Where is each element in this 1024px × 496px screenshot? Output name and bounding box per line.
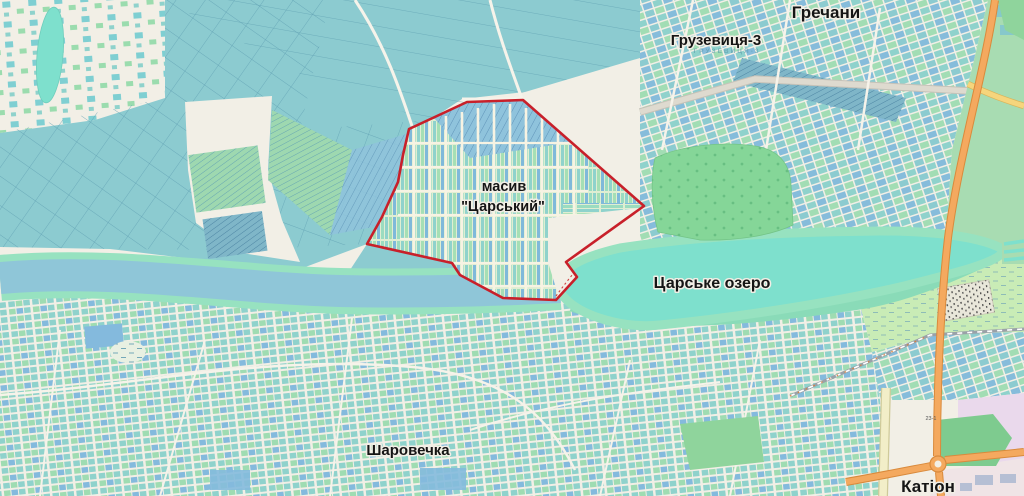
place-label-gruzevytsia3: Грузевиця-3 <box>671 32 761 49</box>
green-patch-south <box>680 416 764 470</box>
place-label-masiv-line2: "Царський" <box>461 199 545 215</box>
road-ref-label: 23-1 <box>925 416 936 422</box>
boulevard <box>883 388 886 496</box>
place-label-sharovechka: Шаровечка <box>366 442 450 459</box>
place-label-grechany: Гречани <box>792 3 860 22</box>
orchard <box>652 144 793 240</box>
map-canvas[interactable]: Гречани Грузевиця-3 ГРУЗЕВИЦЯ-3 масив "Ц… <box>0 0 1024 496</box>
area-label-gruzevytsia3: ГРУЗЕВИЦЯ-3 <box>694 48 761 55</box>
place-label-masiv-line1: масив <box>482 179 527 195</box>
place-label-tsarske-ozero: Царське озеро <box>654 275 771 292</box>
map-viewport[interactable]: Гречани Грузевиця-3 ГРУЗЕВИЦЯ-3 масив "Ц… <box>0 0 1024 496</box>
sharovechka-plots-area <box>0 297 884 496</box>
place-label-kation: Катіон <box>901 477 955 496</box>
